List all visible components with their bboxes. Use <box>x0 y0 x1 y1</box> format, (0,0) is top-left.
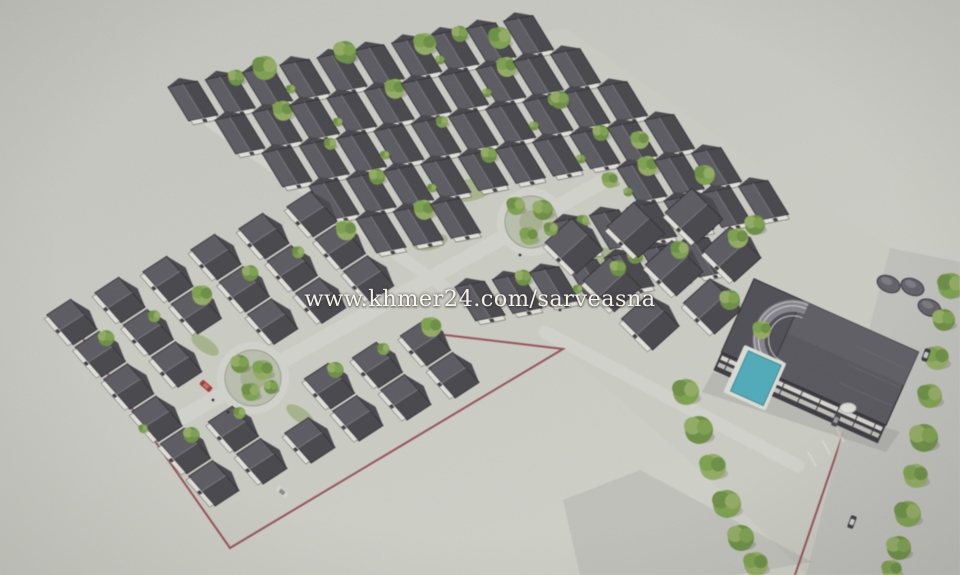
photo-of-site-plan: www.khmer24.com/sarveasna <box>0 0 960 575</box>
film-grain <box>0 0 960 575</box>
photo-grain <box>0 0 960 575</box>
site-plan-rendering <box>0 0 960 575</box>
